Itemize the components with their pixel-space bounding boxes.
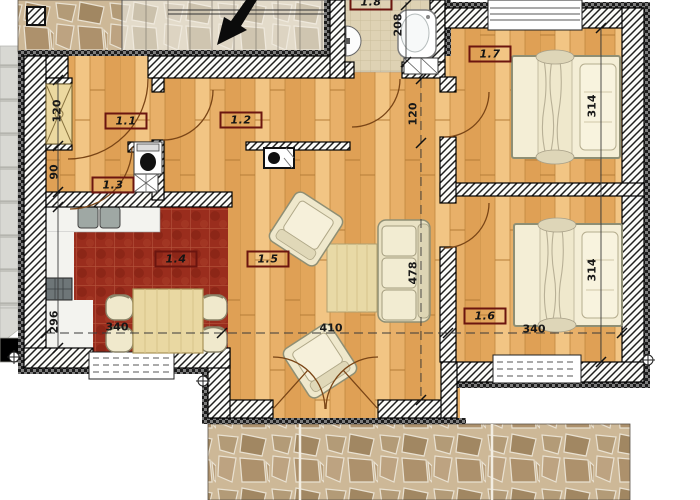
wall-kitchen-bottom-a [24,348,93,368]
dim-wardrobe-120: 120 [51,100,64,123]
wall-bath-bottom-stub [345,62,354,78]
stone-terrace [208,424,630,500]
chimney [264,148,294,168]
wall-bedroom1-top-a [445,8,492,28]
dim-kitchen-296: 296 [48,311,61,334]
wall-living-bottom-b [378,400,443,418]
room-label-1-4: 1.4 [155,251,198,268]
washbasin [134,174,158,192]
window-bedroom1 [488,0,582,30]
washing-machine [404,58,438,74]
dim-bedroom2-340: 340 [523,323,546,336]
wall-bath-left [330,0,345,78]
chair [200,327,227,352]
wall-thin-partition [246,142,350,150]
toilet [134,142,162,174]
room-label-1-1: 1.1 [105,113,148,130]
dim-bedroom2-314: 314 [586,259,599,282]
sidewalk [0,46,18,308]
window-bedroom2 [493,355,581,383]
wall-corridor-stub3 [440,247,456,362]
wall-bedroom2-bottom-b [577,362,644,382]
wall-corridor-stub1 [440,77,456,92]
dim-bath-208: 208 [392,14,405,37]
wall-corridor-stub2 [440,137,456,203]
room-label-1-7: 1.7 [469,46,512,63]
room-label-1-2: 1.2 [220,112,263,129]
room-label-1-3: 1.3 [92,177,135,194]
wall-left [24,56,46,368]
coffee-table [327,244,377,312]
chair [106,295,133,320]
floor-plan: 1.1 1.2 1.3 1.4 1.5 1.6 1.7 1.8 120 90 2… [0,0,700,500]
sofa [378,220,430,322]
staircase [122,0,330,52]
patio-post [27,7,45,25]
wall-top-main [148,56,332,78]
chair [200,295,227,320]
sink-tap [345,38,350,44]
dim-bedroom1-314: 314 [586,95,599,118]
dim-living-410: 410 [320,322,343,335]
wall-between-bedrooms [440,183,644,196]
room-label-1-8: 1.8 [350,0,393,11]
room-label-1-5: 1.5 [247,251,290,268]
wall-hall-stub [152,78,164,92]
room-label-1-6: 1.6 [464,308,507,325]
bed-bedroom1 [512,50,620,164]
stove [46,278,72,300]
dim-living-478: 478 [407,262,420,285]
wall-bedroom2-bottom-a [455,362,497,382]
kitchen-sink-bowl [100,207,120,228]
wall-corner-vertical [441,362,457,418]
wall-kitchen-partition [46,192,232,207]
dim-wc-90: 90 [48,164,61,179]
kitchen-sink [78,207,98,228]
dim-kitchen-340: 340 [106,321,129,334]
window-kitchen [89,352,174,379]
dim-hall-120: 120 [407,103,420,126]
floor-plan-drawing [0,0,700,500]
bed-bedroom2 [514,218,622,332]
